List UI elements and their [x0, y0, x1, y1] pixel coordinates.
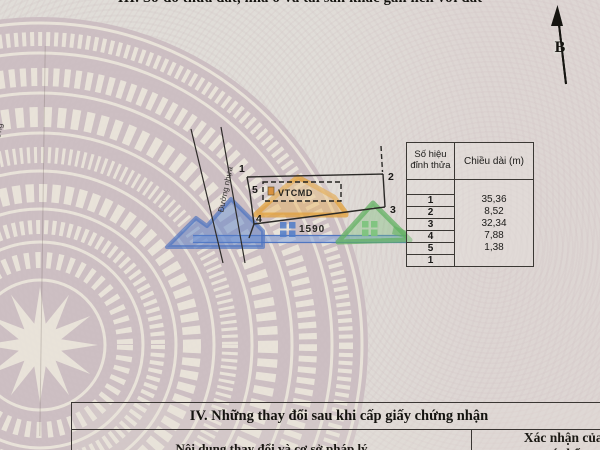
north-arrowhead: [551, 5, 563, 26]
vertex-cell: 3: [407, 219, 454, 231]
vertex-column: 1 2 3 4 5 1: [407, 180, 455, 266]
length-value: 8,52: [455, 206, 533, 218]
measurement-table-body: 1 2 3 4 5 1 35,36 8,52 32,34 7,88 1,38: [407, 180, 533, 266]
vtcmd-marker-icon: [268, 187, 274, 195]
length-value: 32,34: [455, 218, 533, 230]
length-value: 7,88: [455, 230, 533, 242]
section4-box: IV. Những thay đổi sau khi cấp giấy chứn…: [71, 402, 600, 450]
vertex-label-3: 3: [390, 204, 396, 216]
vertex-cell: 5: [407, 243, 454, 255]
section4-right-column-header: Xác nhận của cơ quan có thẩm quyền: [473, 430, 600, 450]
adjacent-boundary-tick: [381, 146, 383, 172]
parcel-edge-2-3: [383, 174, 385, 207]
section4-right-line1: Xác nhận của cơ quan: [473, 430, 600, 446]
section4-title: IV. Những thay đổi sau khi cấp giấy chứn…: [72, 403, 600, 430]
length-value: 1,38: [455, 242, 533, 254]
section3-title: III. Sơ đồ thửa đất, nhà ở và tài sản kh…: [0, 0, 600, 7]
vertex-label-1: 1: [239, 163, 245, 175]
measurement-table: Số hiệu đỉnh thửa Chiều dài (m) 1 2 3 4 …: [406, 142, 534, 267]
vertex-label-5: 5: [252, 184, 258, 196]
vertex-column-header: Số hiệu đỉnh thửa: [407, 143, 455, 179]
vertex-cell: 4: [407, 231, 454, 243]
vertex-cell: [407, 180, 454, 195]
section4-right-line2: có thẩm quyền: [473, 446, 600, 450]
north-arrow-icon: B: [551, 5, 566, 84]
vertex-label-2: 2: [388, 171, 394, 183]
parcel-number-label: 1590: [299, 224, 325, 235]
length-column: 35,36 8,52 32,34 7,88 1,38: [455, 180, 533, 266]
length-column-header: Chiều dài (m): [455, 143, 533, 179]
measurement-table-header: Số hiệu đỉnh thửa Chiều dài (m): [407, 143, 533, 180]
vtcmd-annotation: VTCMD: [263, 182, 341, 201]
certificate-page: 1 2 3 4 5 Đường nhựa 1590 VTCMD B III. S…: [0, 0, 600, 450]
section4-left-column-header: Nội dung thay đổi và cơ sở pháp lý: [72, 441, 471, 450]
vertex-cell: 1: [407, 195, 454, 207]
vtcmd-label: VTCMD: [278, 188, 313, 198]
vertex-cell: 2: [407, 207, 454, 219]
vertex-label-4: 4: [256, 213, 262, 225]
length-value: 35,36: [455, 194, 533, 206]
vertex-cell: 1: [407, 255, 454, 266]
